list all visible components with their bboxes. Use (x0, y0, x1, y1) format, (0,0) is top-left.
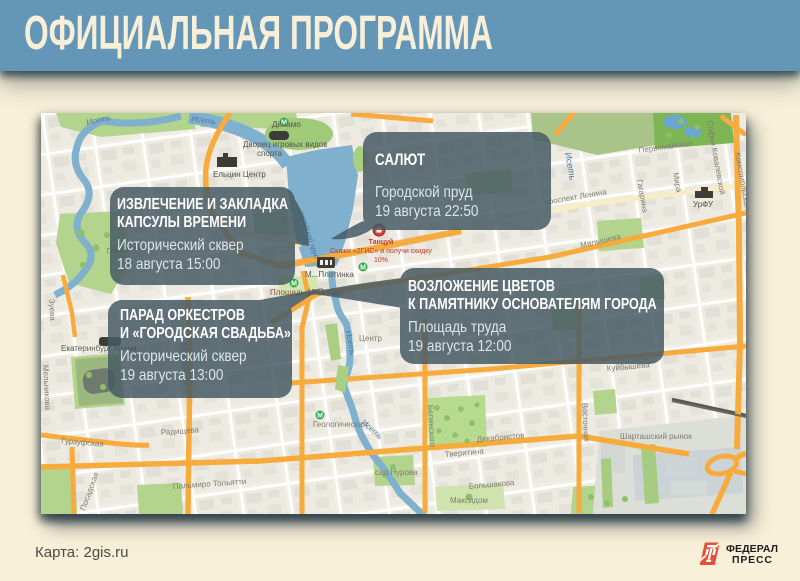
svg-text:Ельцин Центр: Ельцин Центр (213, 170, 266, 179)
svg-text:Зуева: Зуева (47, 299, 57, 322)
svg-text:Динамо: Динамо (272, 120, 301, 129)
svg-text:Геологическая: Геологическая (313, 420, 367, 429)
svg-text:Максидом: Максидом (450, 496, 488, 505)
svg-text:спорта: спорта (257, 149, 283, 158)
svg-text:Шарташский рынок: Шарташский рынок (620, 432, 692, 441)
svg-text:M: M (317, 413, 323, 420)
svg-text:УрФУ: УрФУ (693, 200, 714, 209)
svg-text:Скажи «2ГИС» и получи скидку: Скажи «2ГИС» и получи скидку (330, 248, 432, 255)
svg-text:ПРЕСС: ПРЕСС (732, 554, 772, 566)
svg-text:Дворец игровых видов: Дворец игровых видов (243, 140, 327, 149)
svg-text:сад Нурова: сад Нурова (375, 468, 418, 477)
